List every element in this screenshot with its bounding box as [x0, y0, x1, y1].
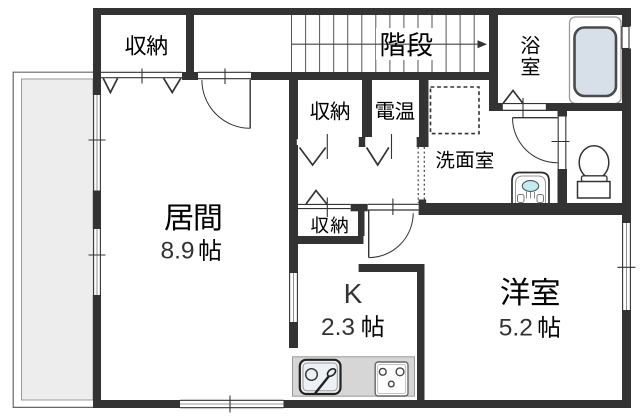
- svg-text:2.3: 2.3: [321, 314, 355, 341]
- svg-text:8.9: 8.9: [160, 238, 194, 265]
- svg-text:K: K: [344, 278, 363, 309]
- svg-text:5.2: 5.2: [499, 315, 533, 342]
